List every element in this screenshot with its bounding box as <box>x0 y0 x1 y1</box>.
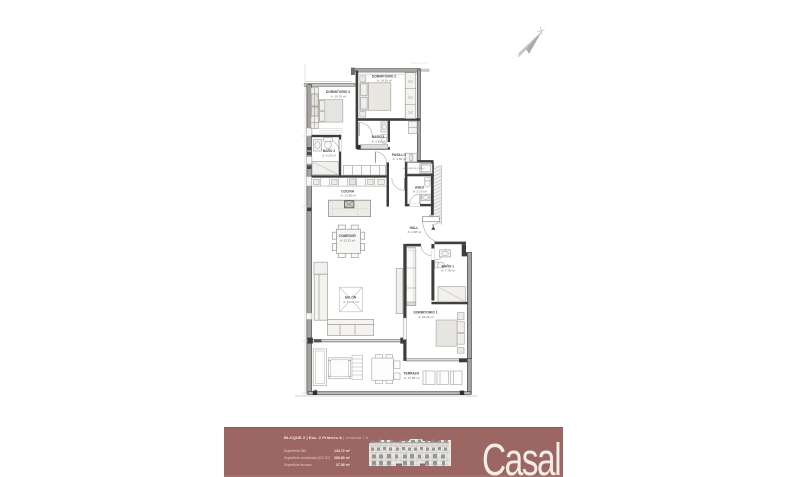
svg-text:A: 4.56 m²: A: 4.56 m² <box>393 157 407 161</box>
svg-text:A: 7.78 m²: A: 7.78 m² <box>441 269 455 273</box>
svg-text:A: 14.16 m²: A: 14.16 m² <box>377 79 393 83</box>
svg-text:A: 10.76 m²: A: 10.76 m² <box>331 95 347 99</box>
svg-text:A: 13.23 m²: A: 13.23 m² <box>340 238 356 242</box>
svg-text:A: 37.58 m²: A: 37.58 m² <box>404 376 420 380</box>
svg-text:DORMITORIO 3: DORMITORIO 3 <box>326 90 350 94</box>
svg-text:A: 2.70 m²: A: 2.70 m² <box>413 190 427 194</box>
svg-text:DORMITORIO 1: DORMITORIO 1 <box>413 311 437 315</box>
svg-text:BAÑO 3: BAÑO 3 <box>372 134 385 139</box>
svg-text:SALÓN: SALÓN <box>345 295 357 300</box>
svg-text:A: 13.38 m²: A: 13.38 m² <box>341 194 357 198</box>
svg-text:A: 3.82 m²: A: 3.82 m² <box>372 140 386 144</box>
svg-text:A: 4.98 m²: A: 4.98 m² <box>408 230 422 234</box>
svg-text:A: 4.20 m²: A: 4.20 m² <box>322 153 336 157</box>
svg-text:A: 19.01 m²: A: 19.01 m² <box>343 300 359 304</box>
svg-text:LAVADERO A: 4.51 m²: LAVADERO A: 4.51 m² <box>402 167 424 170</box>
svg-text:A: 26.26 m²: A: 26.26 m² <box>418 315 434 319</box>
svg-text:TERRAZA: TERRAZA <box>404 372 420 376</box>
